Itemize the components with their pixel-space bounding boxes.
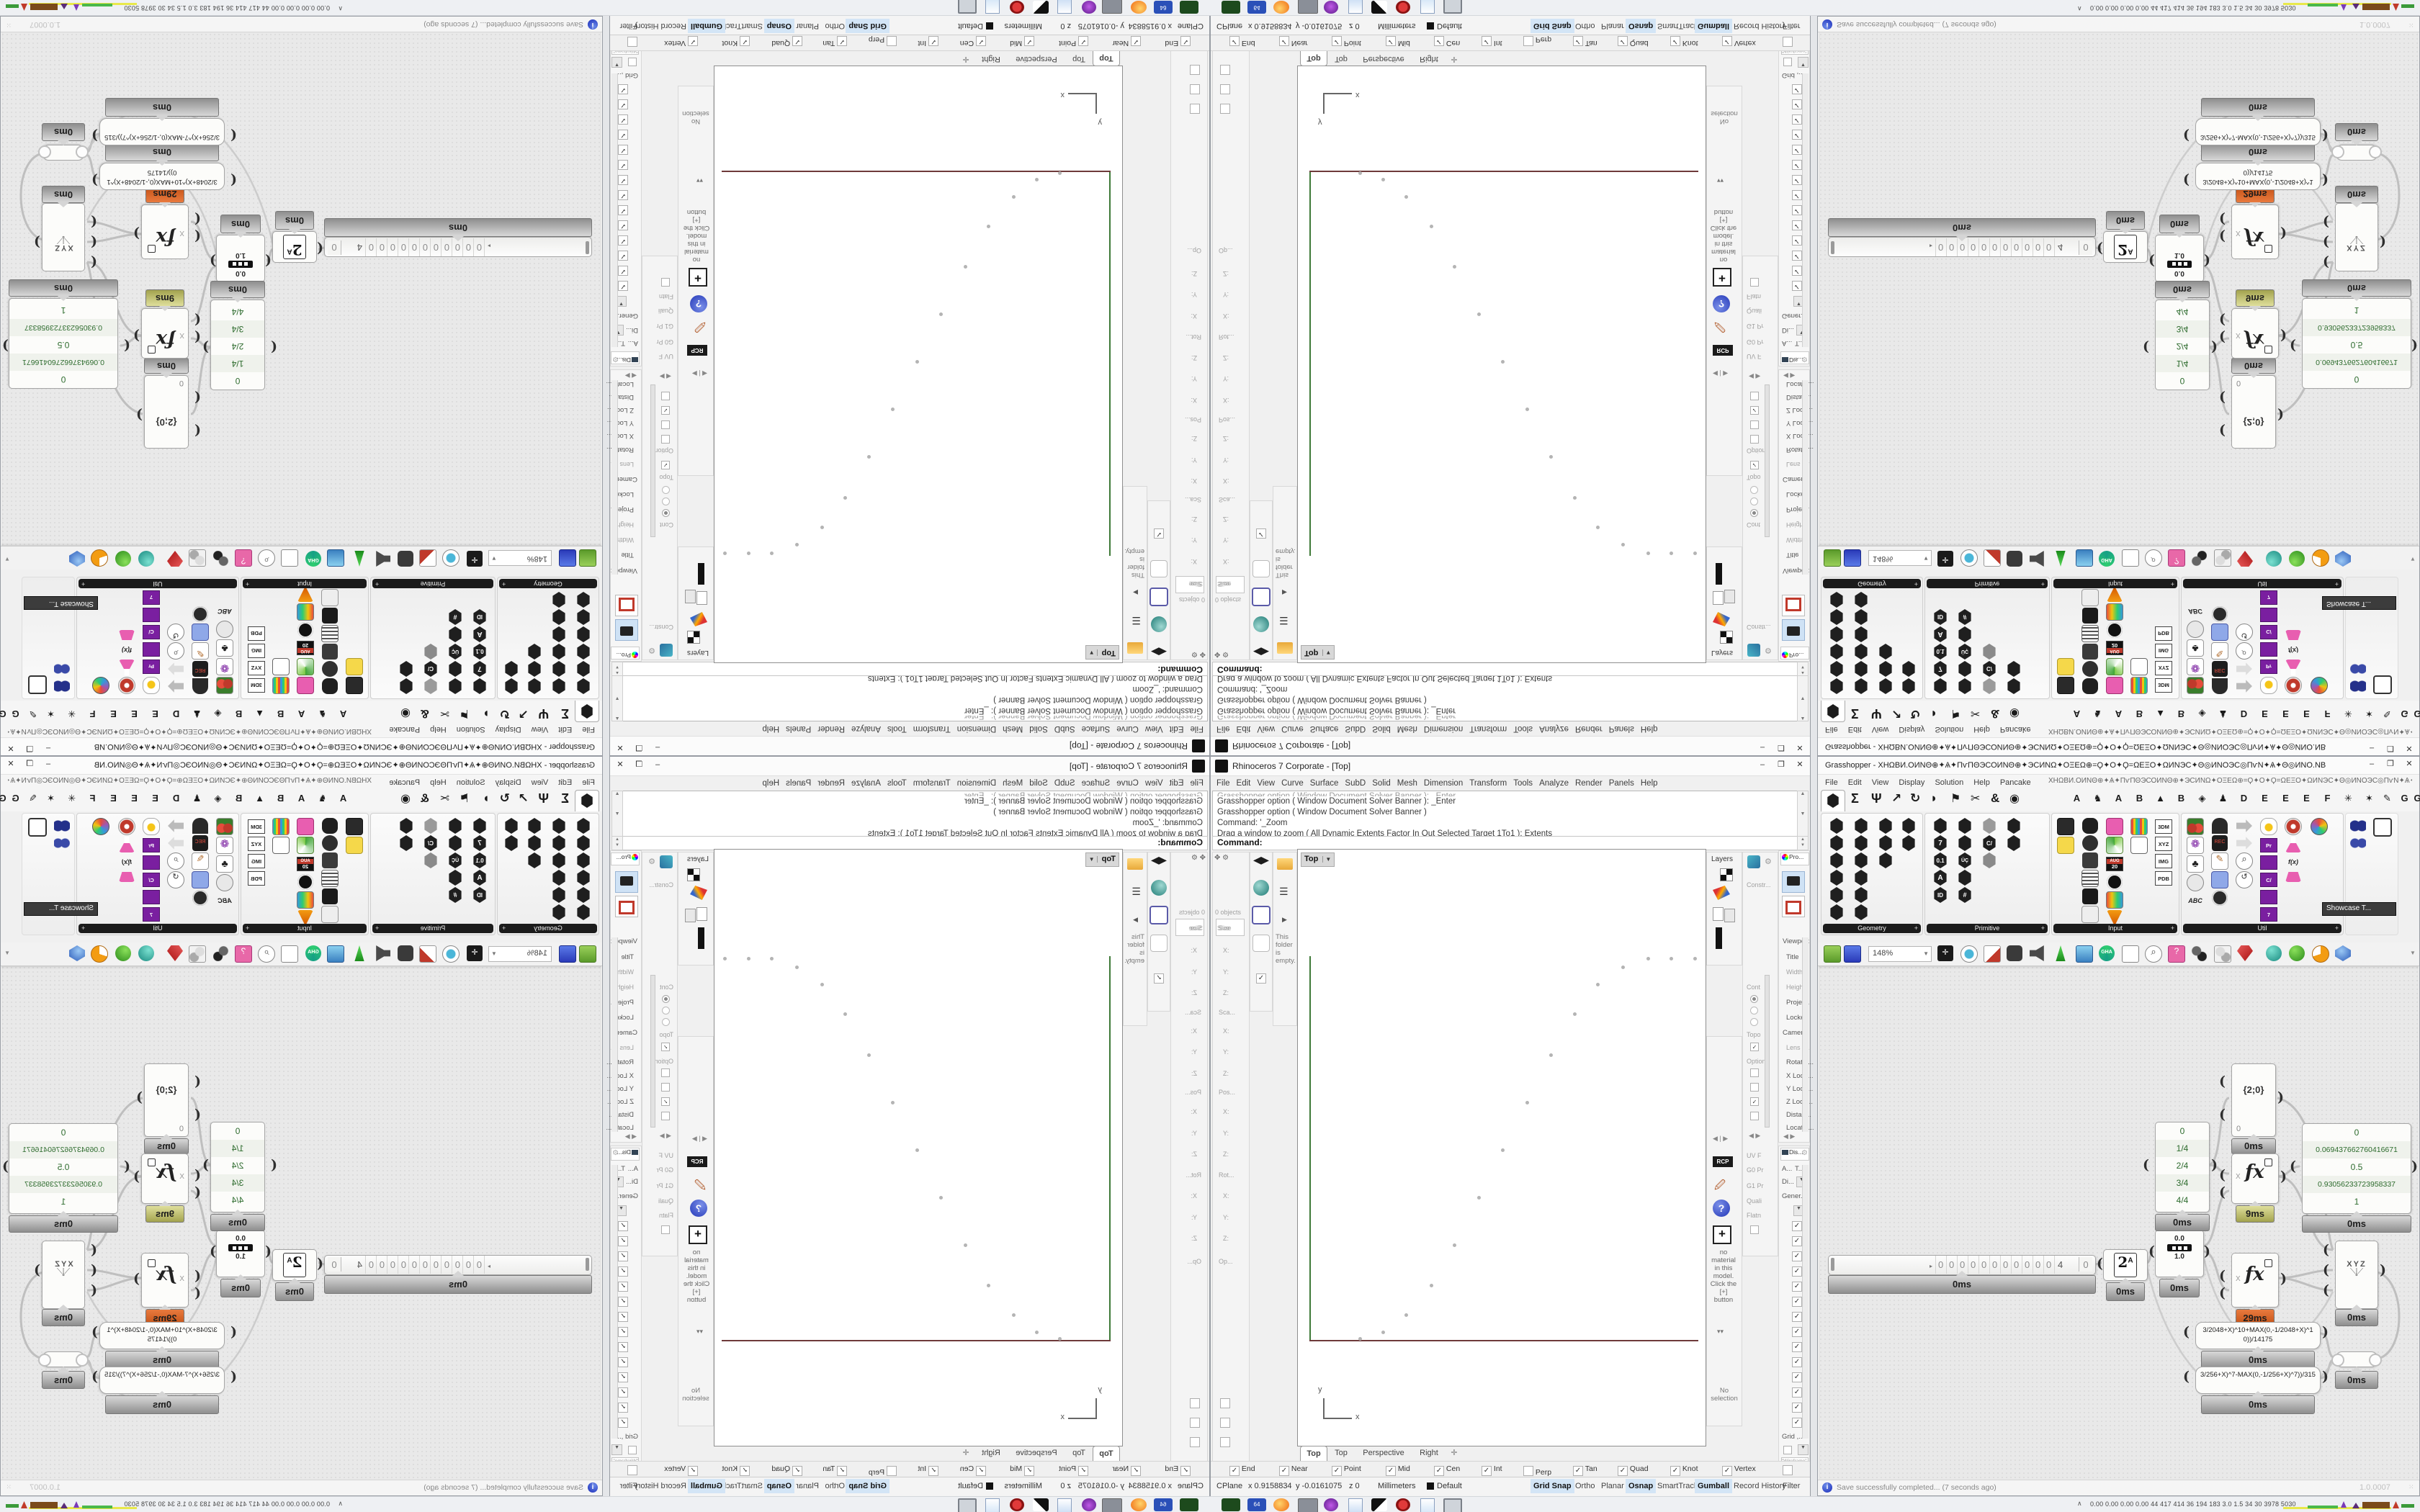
osnap-item[interactable]: ✓ Cen (960, 37, 986, 48)
display-checkbox[interactable]: ✓ (1792, 84, 1802, 94)
prompt-spinner[interactable]: ▲▼ (1797, 836, 1809, 850)
maximize-button[interactable]: ❐ (21, 758, 38, 771)
osnap-item[interactable]: ✓ Mid (1386, 37, 1410, 48)
power-of-two-node[interactable]: 2A (272, 231, 317, 263)
plugin-tab-icon[interactable]: ◈ (207, 708, 228, 719)
input-bracket[interactable]: ( (91, 254, 97, 270)
open-file-icon[interactable] (579, 549, 596, 567)
geometry-icon[interactable] (1854, 592, 1868, 608)
output-bracket[interactable]: ) (136, 407, 143, 423)
viewport-tab[interactable]: Top (1329, 1446, 1353, 1460)
preview-eye-icon[interactable] (442, 945, 460, 963)
menu-item[interactable]: Render (1575, 724, 1603, 733)
plugin-tab[interactable]: D (166, 793, 187, 804)
group-caption[interactable]: Util+ (2183, 924, 2341, 933)
new-viewport-tab[interactable]: ✛ (1447, 52, 1461, 66)
colour-picker-icon[interactable] (297, 658, 314, 675)
curve-point[interactable] (1549, 1053, 1553, 1057)
timer-icon[interactable] (192, 606, 208, 622)
geometry-icon[interactable] (1854, 626, 1868, 642)
input-bracket[interactable]: ( (2097, 240, 2103, 256)
tab-mesh-icon[interactable]: ⚑ (460, 706, 470, 721)
plugin-tab[interactable]: A (2066, 708, 2087, 719)
cherry-picker-icon[interactable] (2187, 818, 2204, 835)
group-caption[interactable]: Input+ (243, 579, 367, 588)
curve-point[interactable] (1477, 1196, 1481, 1200)
expression-text-panel[interactable]: 3/2048+X)^10+MAX(0,-1/2048+X)^10))/14175 (2195, 163, 2321, 190)
magnet-icon[interactable] (2212, 678, 2228, 694)
geometry-icon[interactable] (1829, 644, 1844, 660)
preview-eye-icon[interactable] (1960, 549, 1978, 567)
plugin-tab[interactable]: B (270, 793, 291, 804)
output-bracket[interactable]: ) (2322, 127, 2329, 143)
menu-icon[interactable]: ☰ (1131, 614, 1141, 626)
green-pin-icon[interactable] (115, 551, 131, 567)
menu-item[interactable]: Transform (1469, 779, 1507, 788)
gh-menu-item[interactable]: Pancake (2000, 778, 2031, 787)
curve-point[interactable] (747, 552, 750, 555)
colour-swatch-icon[interactable] (297, 818, 314, 835)
stripes-icon[interactable] (2130, 677, 2148, 694)
display-checkbox[interactable]: ✓ (1792, 205, 1802, 215)
capsule-node[interactable] (42, 1351, 85, 1367)
menu-item[interactable]: Solid (1029, 779, 1048, 788)
gh-menu-item[interactable]: Pancake (389, 725, 420, 734)
geometry-icon[interactable] (576, 592, 591, 608)
osnap-item[interactable]: ✓ Quad (1618, 37, 1649, 48)
checkbox[interactable]: ✓ (1750, 1043, 1759, 1051)
power-of-two-node[interactable]: 2A (2103, 231, 2148, 263)
group-caption[interactable]: Util+ (79, 924, 237, 933)
osnap-item[interactable]: ✓ Point (1332, 37, 1361, 48)
toggle-ortho[interactable]: Ortho (822, 19, 848, 33)
trapezoid-icon[interactable] (119, 630, 135, 640)
curve-point[interactable] (1693, 957, 1697, 960)
geometry-icon[interactable] (527, 818, 542, 834)
input-bracket[interactable]: ( (2148, 253, 2155, 269)
import-3dm-icon[interactable]: 3DM (2155, 678, 2172, 693)
culture-icon[interactable]: ÜÇ (448, 644, 462, 660)
checkbox[interactable] (661, 1112, 670, 1120)
checkbox[interactable] (628, 58, 637, 66)
import-pdb-icon[interactable]: PDB (248, 626, 265, 641)
viewport-tab[interactable]: Perspective (1009, 1446, 1064, 1460)
viewport-top[interactable]: Top ▼ (1297, 849, 1706, 1446)
button-icon[interactable] (2082, 661, 2098, 677)
add-material-button[interactable]: + (1713, 1225, 1731, 1244)
capsule-node[interactable] (42, 145, 85, 161)
radio-off[interactable] (662, 486, 670, 494)
checkbox[interactable]: ✓ (1750, 406, 1759, 415)
palette-icon[interactable] (2311, 677, 2328, 694)
curve-point[interactable] (1646, 552, 1650, 555)
input-bracket[interactable]: ( (230, 1324, 237, 1340)
tab-sets-icon[interactable]: Ψ (538, 706, 549, 721)
primitive-icon[interactable] (448, 661, 462, 677)
checkbox[interactable] (1783, 58, 1792, 66)
input-bracket[interactable]: ( (2323, 214, 2329, 230)
cluster-icon[interactable] (213, 945, 229, 961)
power-of-two-node[interactable]: 2A (2103, 1249, 2148, 1281)
ruby-icon[interactable] (167, 551, 183, 567)
display-checkbox[interactable]: ✓ (618, 1221, 628, 1231)
curve-point[interactable] (1035, 178, 1039, 181)
osnap-item[interactable]: ✓ End (1229, 37, 1255, 48)
properties-tab[interactable]: Pro... (1780, 647, 1809, 660)
list-icon[interactable] (321, 625, 339, 642)
circle-icon[interactable] (216, 621, 233, 638)
curve-point[interactable] (915, 360, 919, 364)
fx-icon[interactable]: f(x) (119, 644, 135, 657)
panel-icon[interactable] (322, 888, 338, 904)
primitive-icon[interactable] (1982, 678, 1996, 694)
digit-scroller-icon[interactable] (2082, 852, 2098, 868)
menu-item[interactable]: Help (1641, 724, 1658, 733)
osnap-item[interactable]: ✓ Mid (1386, 1464, 1410, 1475)
primitive-icon[interactable] (1958, 835, 1972, 851)
menu-icon[interactable]: ☰ (1279, 886, 1289, 898)
display-checkbox[interactable]: ✓ (618, 130, 628, 140)
abc-icon[interactable]: ABC (2187, 605, 2203, 618)
plugin-tab-icon[interactable]: ▲ (249, 793, 270, 804)
save-file-icon[interactable] (559, 945, 576, 963)
osnap-item[interactable]: ✓ Near (1279, 1464, 1308, 1475)
gha-recycle-icon[interactable]: GHA (2099, 551, 2115, 567)
zoom-extents-icon[interactable]: ✛ (467, 551, 483, 567)
geometry-icon[interactable] (1854, 661, 1868, 677)
arrow-right-icon[interactable] (2236, 678, 2252, 694)
curve-point[interactable] (1477, 312, 1481, 316)
plugin-tab-icon[interactable]: ✳ (2338, 793, 2359, 804)
menu-item[interactable]: Transform (913, 779, 951, 788)
tab-transform-icon[interactable]: & (421, 791, 429, 806)
geometry-icon[interactable] (1854, 609, 1868, 625)
fraction-panel[interactable]: 0 1/4 2/4 3/4 4/4 (2155, 1122, 2210, 1212)
tab-maths-icon[interactable]: Σ (1851, 791, 1859, 806)
taskbar-app-wolf[interactable] (1371, 1498, 1387, 1511)
checkbox[interactable] (1750, 392, 1759, 400)
integer-icon[interactable]: 7 (472, 835, 487, 851)
gh-menu-item[interactable]: Edit (558, 778, 572, 787)
taskbar-app-wolf[interactable] (1033, 1, 1049, 14)
toggle-ortho[interactable]: Ortho (822, 1479, 848, 1493)
geometry-icon[interactable] (576, 609, 591, 625)
group-caption[interactable]: Input+ (2053, 579, 2177, 588)
guid-icon[interactable]: ID (1933, 609, 1948, 625)
curve-point[interactable] (843, 1012, 847, 1016)
input-bracket[interactable]: ( (2183, 172, 2190, 188)
input-bracket[interactable]: ( (317, 240, 323, 256)
command-history[interactable]: Grasshopper option ( Window Document Sol… (1212, 791, 1798, 837)
tab-vector-icon[interactable]: ↗ (519, 791, 529, 806)
taskbar-app-badge[interactable] (1396, 1498, 1410, 1511)
plugin-tab-icon[interactable]: ✳ (61, 793, 82, 804)
help-icon[interactable]: ? (1713, 1200, 1730, 1217)
complex-icon[interactable]: C/ (423, 835, 438, 851)
new-viewport-tab[interactable]: ✛ (959, 52, 973, 66)
geometry-icon[interactable] (552, 644, 566, 660)
seven-icon[interactable]: 7 (2260, 590, 2277, 605)
render-frame-icon[interactable] (1252, 906, 1270, 924)
geometry-icon[interactable] (527, 644, 542, 660)
primitive-icon[interactable] (1958, 661, 1972, 677)
geometry-icon[interactable] (1829, 678, 1844, 694)
plugin-tab-icon[interactable]: ♟ (2213, 708, 2233, 719)
rhino-titlebar[interactable]: Rhinoceros 7 Corporate - [Top] – ❐ ✕ (1211, 757, 1810, 776)
pencil-icon[interactable]: ✎ (192, 852, 209, 870)
output-bracket[interactable]: ) (133, 1271, 140, 1287)
plugin-tab[interactable]: F (2317, 708, 2338, 719)
curve-point[interactable] (939, 312, 943, 316)
tree-icon[interactable]: ♣ (216, 855, 233, 873)
checkbox[interactable] (1783, 1446, 1792, 1454)
primitive-icon[interactable] (1982, 852, 1996, 868)
values-panel[interactable]: 0 0.069437662760416671 0.5 0.93056233723… (2302, 1123, 2411, 1214)
input-bracket[interactable]: ( (2183, 1369, 2190, 1385)
osnap-item[interactable]: ✓ Knot (722, 37, 750, 48)
curve-point[interactable] (1596, 526, 1600, 529)
primitive-icon[interactable] (472, 818, 487, 834)
zoom-q-icon[interactable]: ⌕ (2236, 642, 2253, 660)
curve-point[interactable] (1670, 552, 1673, 555)
geometry-icon[interactable] (1854, 904, 1868, 920)
zoom-combobox[interactable]: 148% ▼ (1868, 550, 1932, 566)
render-frame-icon[interactable] (1252, 588, 1270, 606)
help-box-icon[interactable]: ? (2168, 549, 2185, 567)
properties-tab[interactable]: Pro... (1780, 852, 1809, 865)
geometry-icon[interactable] (552, 626, 566, 642)
resize-grip[interactable]: ⁙ (5, 1483, 12, 1491)
menu-item[interactable]: Solid (1372, 779, 1391, 788)
input-bracket[interactable]: ( (2290, 1158, 2296, 1174)
gradient-icon[interactable] (297, 603, 314, 621)
osnap-item[interactable]: ✓ Point (1059, 1464, 1088, 1475)
shaded-sphere-icon[interactable] (1151, 616, 1167, 632)
radio-on[interactable] (1750, 509, 1758, 517)
curve-point[interactable] (987, 225, 990, 228)
primitive-icon[interactable] (423, 818, 438, 834)
gh-menu-item[interactable]: Display (1899, 725, 1924, 734)
taskbar-app-remote[interactable] (1298, 0, 1318, 14)
menu-item[interactable]: Tools (887, 724, 907, 733)
plugin-tab-icon[interactable]: ◈ (2192, 708, 2213, 719)
menu-item[interactable]: Render (817, 724, 845, 733)
guid-icon[interactable]: ID (472, 887, 487, 903)
osnap-item[interactable]: ✓ End (1165, 1464, 1191, 1475)
output-bracket[interactable]: ) (2280, 225, 2287, 241)
text-icon[interactable]: A (472, 870, 487, 886)
values-panel[interactable]: 0 0.069437662760416671 0.5 0.93056233723… (9, 298, 118, 389)
folder-icon[interactable] (1127, 642, 1143, 654)
tab-curve-icon[interactable]: ↻ (1910, 706, 1920, 721)
input-bracket[interactable]: ( (317, 1256, 323, 1272)
viewport-top[interactable]: Top ▼ (714, 849, 1123, 1446)
viewport-dropdown-icon[interactable]: ▼ (1322, 649, 1331, 656)
input-bracket[interactable]: ( (194, 228, 201, 244)
command-prompt-row[interactable]: Command: (622, 662, 1208, 676)
tree-icon[interactable]: ♣ (2187, 855, 2204, 873)
viewport-tab-active[interactable]: Top (1300, 51, 1327, 66)
speaker-icon[interactable] (2030, 945, 2045, 961)
circle-icon[interactable] (2187, 621, 2204, 638)
minimize-button[interactable]: – (2363, 758, 2380, 771)
checkbox[interactable]: ✓ (1750, 1097, 1759, 1106)
v-slider[interactable] (1765, 384, 1770, 537)
calendar-icon[interactable]: AUG20 (2106, 857, 2123, 871)
values-panel[interactable]: 0 0.069437662760416671 0.5 0.93056233723… (2302, 298, 2411, 389)
close-button[interactable]: ✕ (2401, 758, 2418, 771)
osnap-item[interactable]: ✓ Tan (1573, 1464, 1597, 1475)
proximity-icon[interactable]: Pr (143, 838, 160, 852)
close-button[interactable]: ✕ (2, 741, 19, 754)
menu-item[interactable]: Analyze (851, 779, 881, 788)
gh-menu-item[interactable]: File (582, 725, 595, 734)
rhino-titlebar[interactable]: Rhinoceros 7 Corporate - [Top] – ❐ ✕ (610, 736, 1209, 755)
command-scrollbar[interactable]: ▲▼ (611, 791, 623, 837)
checkbox[interactable] (1190, 1398, 1200, 1408)
geometry-icon[interactable] (1829, 904, 1844, 920)
output-bracket[interactable]: ) (2280, 1271, 2287, 1287)
checkbox[interactable] (1190, 1418, 1200, 1428)
expand-arrow-icon[interactable]: ▶ (1282, 588, 1287, 596)
toggle-planar[interactable]: Planar (793, 1479, 822, 1493)
menu-icon[interactable]: ☰ (1131, 886, 1141, 898)
osnap-item[interactable]: ✓ Int (1482, 1464, 1502, 1475)
doc-settings-icon[interactable] (2122, 549, 2139, 567)
geometry-icon[interactable] (1878, 661, 1893, 677)
display-checkbox[interactable]: ✓ (1792, 1266, 1802, 1277)
tab-intersect-icon[interactable]: ✂ (440, 706, 449, 721)
expression-node[interactable]: X fx (141, 308, 189, 359)
expression-text-panel[interactable]: 3/2048+X)^10+MAX(0,-1/2048+X)^10))/14175 (99, 1322, 225, 1349)
plugin-tab[interactable]: B (228, 793, 249, 804)
taskbar-app-terminal[interactable] (1180, 1, 1198, 14)
culture-icon[interactable]: ÜÇ (448, 852, 462, 868)
curve-point[interactable] (770, 552, 774, 555)
geometry-icon[interactable] (576, 852, 591, 868)
toggle-grid-snap[interactable]: Grid Snap (846, 19, 889, 33)
param-viewer-node[interactable]: {2;0} 0 (144, 375, 189, 449)
curve-point[interactable] (1058, 171, 1062, 175)
output-bracket[interactable]: ) (91, 127, 98, 143)
image-export-icon[interactable] (2076, 945, 2093, 963)
curve-point[interactable] (1358, 1337, 1362, 1341)
units-cell[interactable]: Millimeters (1378, 17, 1416, 35)
geometry-icon[interactable] (1854, 678, 1868, 694)
toggle-filter[interactable]: Filter (1780, 19, 1803, 33)
record-icon[interactable]: REC (192, 835, 208, 851)
help-icon[interactable]: ? (1713, 295, 1730, 312)
panel-icon[interactable] (2082, 888, 2098, 904)
speaker-icon[interactable] (2030, 551, 2045, 567)
cplane-cell[interactable]: CPlane (1178, 17, 1204, 35)
calendar-icon[interactable]: AUG20 (297, 641, 314, 655)
input-bracket[interactable]: ( (2148, 1243, 2155, 1259)
plugin-tab-icon[interactable]: ♟ (187, 793, 207, 804)
geometry-icon[interactable] (527, 661, 542, 677)
seven-icon[interactable]: 7 (2260, 907, 2277, 922)
output-bracket[interactable]: ) (133, 1169, 140, 1184)
geometry-icon[interactable] (1829, 870, 1844, 886)
menu-item[interactable]: Render (817, 779, 845, 788)
geometry-icon[interactable] (1829, 661, 1844, 677)
layer-cell[interactable]: Default (1437, 1477, 1462, 1495)
input-bracket[interactable]: ( (2219, 1268, 2226, 1284)
import-3dm-icon[interactable]: 3DM (248, 678, 265, 693)
tab-surface-icon[interactable]: ◗ (483, 706, 490, 721)
curve-point[interactable] (820, 983, 824, 986)
checkbox[interactable] (1190, 104, 1200, 114)
output-bracket[interactable]: ) (133, 225, 140, 241)
curve-point[interactable] (1621, 543, 1625, 546)
checkbox[interactable]: ✓ (661, 1097, 670, 1106)
geometry-icon[interactable] (1854, 818, 1868, 834)
viewport-tab[interactable]: Right (976, 1446, 1006, 1460)
primitive-icon[interactable] (448, 835, 462, 851)
import-coordinates-icon[interactable] (2107, 586, 2123, 602)
tab-transform-icon[interactable]: & (421, 706, 429, 721)
collapse-chevrons[interactable]: ▾▾ (696, 1328, 703, 1336)
sketch-pen-icon[interactable] (1984, 945, 2001, 963)
checkbox[interactable] (628, 1446, 637, 1454)
orange-pie-icon[interactable] (91, 945, 108, 963)
plugin-tab[interactable]: F (2317, 793, 2338, 804)
proximity-icon[interactable]: Pr (2260, 838, 2277, 852)
magnet-icon[interactable] (192, 818, 208, 834)
construct-point-node[interactable]: XYZ ⟍|⟋° (42, 1241, 85, 1309)
input-bracket[interactable]: ( (194, 1184, 201, 1200)
geometry-icon[interactable] (1854, 835, 1868, 851)
geometry-icon[interactable] (504, 835, 519, 851)
cluster-cs-icon[interactable]: C/ (143, 625, 160, 639)
brush-icon[interactable]: 🖉 (1714, 316, 1726, 334)
tab-curve-icon[interactable]: ↻ (500, 791, 510, 806)
antenna-icon[interactable] (351, 945, 367, 961)
display-checkbox[interactable]: ✓ (1792, 1251, 1802, 1261)
display-checkbox[interactable]: ✓ (618, 84, 628, 94)
units-cell[interactable]: Millimeters (1004, 1477, 1042, 1495)
bake-icon[interactable] (2007, 551, 2022, 567)
scroller-grip[interactable] (586, 1258, 589, 1271)
menu-item[interactable]: Panels (1609, 724, 1634, 733)
open-file-icon[interactable] (579, 945, 596, 963)
v-scrollbar[interactable] (1802, 380, 1809, 575)
osnap-item[interactable]: ✓ Near (1279, 37, 1308, 48)
plugin-tab-icon[interactable]: ♟ (187, 708, 207, 719)
plugin-tab[interactable]: G (2407, 708, 2420, 719)
green-pin-icon[interactable] (2289, 945, 2305, 961)
gh-menu-item[interactable]: File (1825, 725, 1838, 734)
primitive-icon[interactable] (1958, 818, 1972, 834)
pager[interactable]: ◀ | ▶ (1713, 369, 1728, 377)
colour-picker-icon[interactable] (2106, 837, 2123, 854)
display-checkbox[interactable]: ✓ (1792, 1387, 1802, 1398)
cluster-cs-icon[interactable]: C/ (2260, 873, 2277, 887)
taskbar-app-notepad[interactable] (1057, 1498, 1072, 1512)
import-xyz-icon[interactable]: XYZ (248, 837, 265, 851)
curve-point[interactable] (1646, 957, 1650, 960)
geometry-icon[interactable] (1878, 678, 1893, 694)
primitive-icon[interactable] (1982, 644, 1996, 660)
geometry-icon[interactable] (576, 644, 591, 660)
command-prompt-row[interactable]: Command: (622, 836, 1208, 850)
minimize-button[interactable]: – (40, 758, 57, 771)
input-bracket[interactable]: ( (2183, 1324, 2190, 1340)
blank-swatch-icon[interactable] (1150, 560, 1168, 577)
gear-icon[interactable]: ⚙ (1801, 355, 1808, 363)
glasses-icon[interactable] (2350, 818, 2366, 834)
flask-icon[interactable] (2285, 837, 2301, 852)
